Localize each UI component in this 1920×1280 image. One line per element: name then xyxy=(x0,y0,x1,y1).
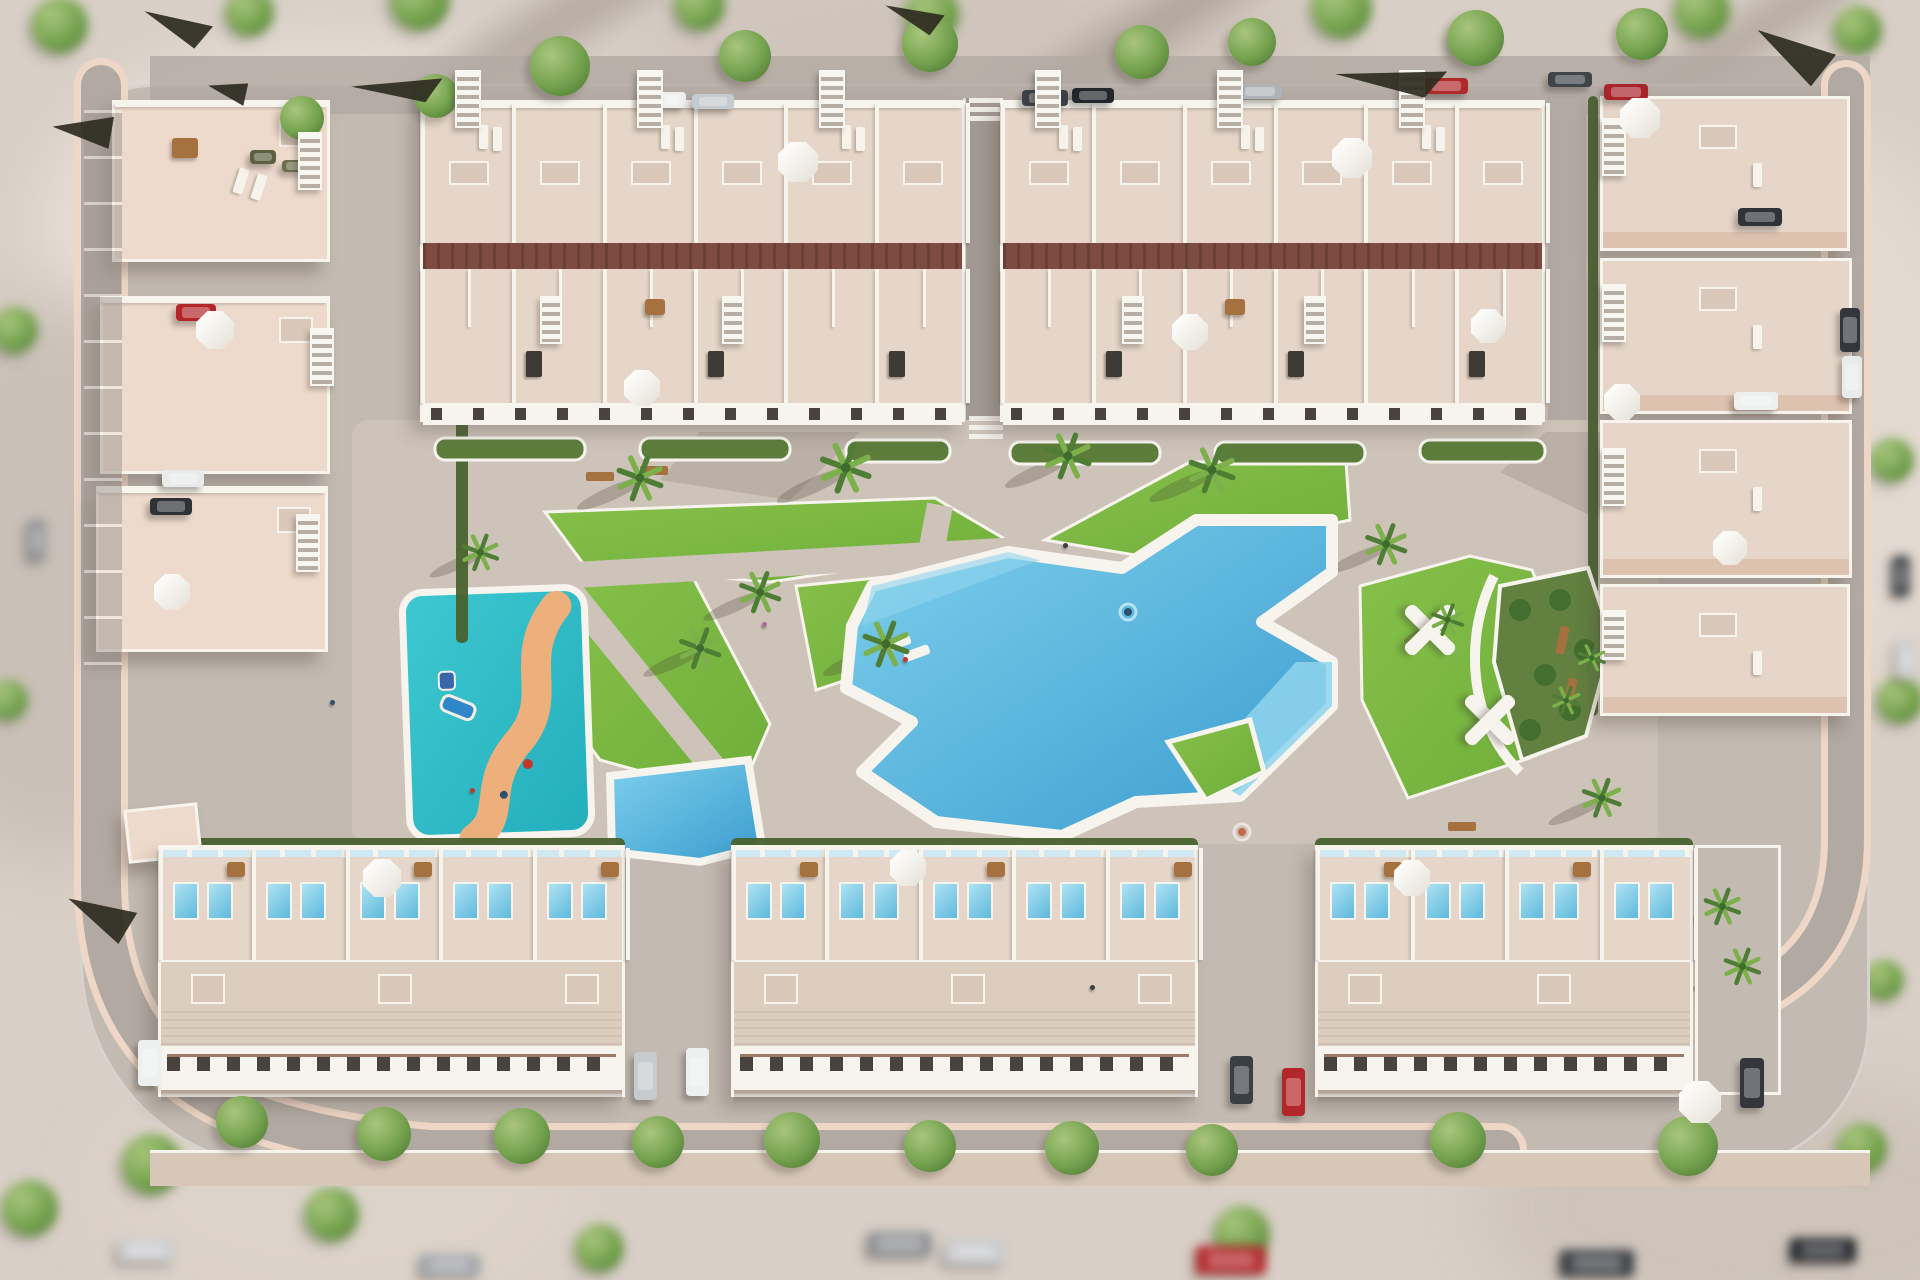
palm-tree xyxy=(1361,519,1411,569)
parasol-umbrella xyxy=(1620,98,1660,138)
parked-car xyxy=(250,150,276,164)
tree xyxy=(904,1120,956,1172)
exterior-staircase xyxy=(1602,284,1626,342)
tree xyxy=(357,1107,411,1161)
exterior-staircase xyxy=(722,296,744,344)
parasol-umbrella xyxy=(363,859,401,897)
parked-car xyxy=(1072,88,1114,103)
parked-car xyxy=(692,94,734,109)
parasol-umbrella xyxy=(1332,138,1372,178)
exterior-staircase xyxy=(637,70,663,128)
aerial-render-residential-complex xyxy=(0,0,1920,1280)
parked-car xyxy=(686,1048,709,1096)
palm-tree xyxy=(858,616,914,672)
parasol-umbrella xyxy=(1471,309,1505,343)
car-windshield xyxy=(699,97,728,106)
parked-car xyxy=(1738,208,1782,226)
exterior-staircase xyxy=(1602,448,1626,506)
palm-tree xyxy=(1700,884,1745,929)
dark-shade-sail xyxy=(140,11,213,50)
palm-tree xyxy=(815,437,877,499)
parked-car xyxy=(138,1040,161,1086)
tree xyxy=(1115,25,1169,79)
car-windshield xyxy=(1741,396,1771,407)
tree xyxy=(1228,18,1276,66)
palm-tree xyxy=(1549,683,1584,718)
palm-tree xyxy=(675,623,725,673)
car-windshield xyxy=(1234,1066,1250,1095)
parked-car xyxy=(1740,1058,1764,1108)
exterior-staircase xyxy=(540,296,562,344)
parked-car xyxy=(1282,1068,1305,1116)
car-windshield xyxy=(1286,1078,1302,1107)
dark-shade-sail xyxy=(52,111,121,162)
palm-tree xyxy=(1040,428,1096,484)
parasol-umbrella xyxy=(778,142,818,182)
palm-tree xyxy=(1578,774,1626,822)
dark-shade-sail xyxy=(64,898,138,945)
parked-car xyxy=(1840,308,1860,352)
parked-car xyxy=(1238,84,1282,99)
tree xyxy=(632,1116,684,1168)
parked-car xyxy=(162,470,204,487)
car-windshield xyxy=(254,153,272,161)
dark-shade-sail xyxy=(1748,30,1837,90)
car-windshield xyxy=(1079,91,1108,100)
tree xyxy=(1616,8,1668,60)
parked-car xyxy=(634,1052,657,1100)
tree xyxy=(1430,1112,1486,1168)
car-windshield xyxy=(1745,212,1775,223)
car-windshield xyxy=(1245,87,1275,96)
pedestrian xyxy=(1090,985,1095,990)
palm-tree xyxy=(1428,600,1467,639)
pedestrian xyxy=(762,622,767,627)
tree xyxy=(1186,1124,1238,1176)
palm-tree xyxy=(1575,641,1609,675)
car-windshield xyxy=(1555,75,1585,84)
car-windshield xyxy=(1611,87,1641,97)
tree xyxy=(719,30,771,82)
palm-tree xyxy=(1184,442,1240,498)
parasol-umbrella xyxy=(1394,860,1430,896)
dark-shade-sail xyxy=(1335,66,1449,104)
parasol-umbrella xyxy=(154,574,190,610)
exterior-staircase xyxy=(298,132,322,190)
parked-car xyxy=(1230,1056,1253,1104)
parasol-umbrella xyxy=(624,370,660,406)
exterior-staircase xyxy=(1035,70,1061,128)
exterior-staircase xyxy=(819,70,845,128)
car-windshield xyxy=(690,1058,706,1087)
palm-tree xyxy=(1720,944,1765,989)
tree xyxy=(216,1096,268,1148)
parked-car xyxy=(150,498,192,515)
parasol-umbrella xyxy=(1604,384,1640,420)
tree xyxy=(764,1112,820,1168)
parked-car xyxy=(1548,72,1592,87)
parasol-umbrella xyxy=(890,850,926,886)
tree xyxy=(494,1108,550,1164)
parked-car xyxy=(1842,356,1862,398)
car-windshield xyxy=(1744,1068,1760,1098)
tree xyxy=(1045,1121,1099,1175)
exterior-staircase xyxy=(455,70,481,128)
pergola-x-structure xyxy=(1445,675,1536,766)
dark-shade-sail xyxy=(208,79,252,112)
tree xyxy=(1658,1116,1718,1176)
exterior-staircase xyxy=(1304,296,1326,344)
car-windshield xyxy=(157,501,186,511)
pedestrian xyxy=(330,700,335,705)
tree xyxy=(530,36,590,96)
palm-tree xyxy=(735,567,785,617)
tree xyxy=(1448,10,1504,66)
exterior-staircase xyxy=(1217,70,1243,128)
car-windshield xyxy=(638,1062,654,1091)
car-windshield xyxy=(169,473,198,483)
car-windshield xyxy=(1843,317,1857,343)
palm-tree xyxy=(612,450,668,506)
parasol-umbrella xyxy=(1713,531,1747,565)
parasol-umbrella xyxy=(196,311,234,349)
parasol-umbrella xyxy=(1679,1081,1721,1123)
pedestrian xyxy=(470,788,475,793)
street-furniture-layer xyxy=(0,0,1920,1280)
car-windshield xyxy=(142,1049,158,1077)
parked-car xyxy=(1604,84,1648,100)
parked-car xyxy=(1734,392,1778,410)
exterior-staircase xyxy=(310,328,334,386)
pedestrian xyxy=(1063,543,1068,548)
parasol-umbrella xyxy=(1172,314,1208,350)
palm-tree xyxy=(458,530,503,575)
car-windshield xyxy=(1845,364,1859,389)
exterior-staircase xyxy=(1122,296,1144,344)
exterior-staircase xyxy=(296,514,320,572)
